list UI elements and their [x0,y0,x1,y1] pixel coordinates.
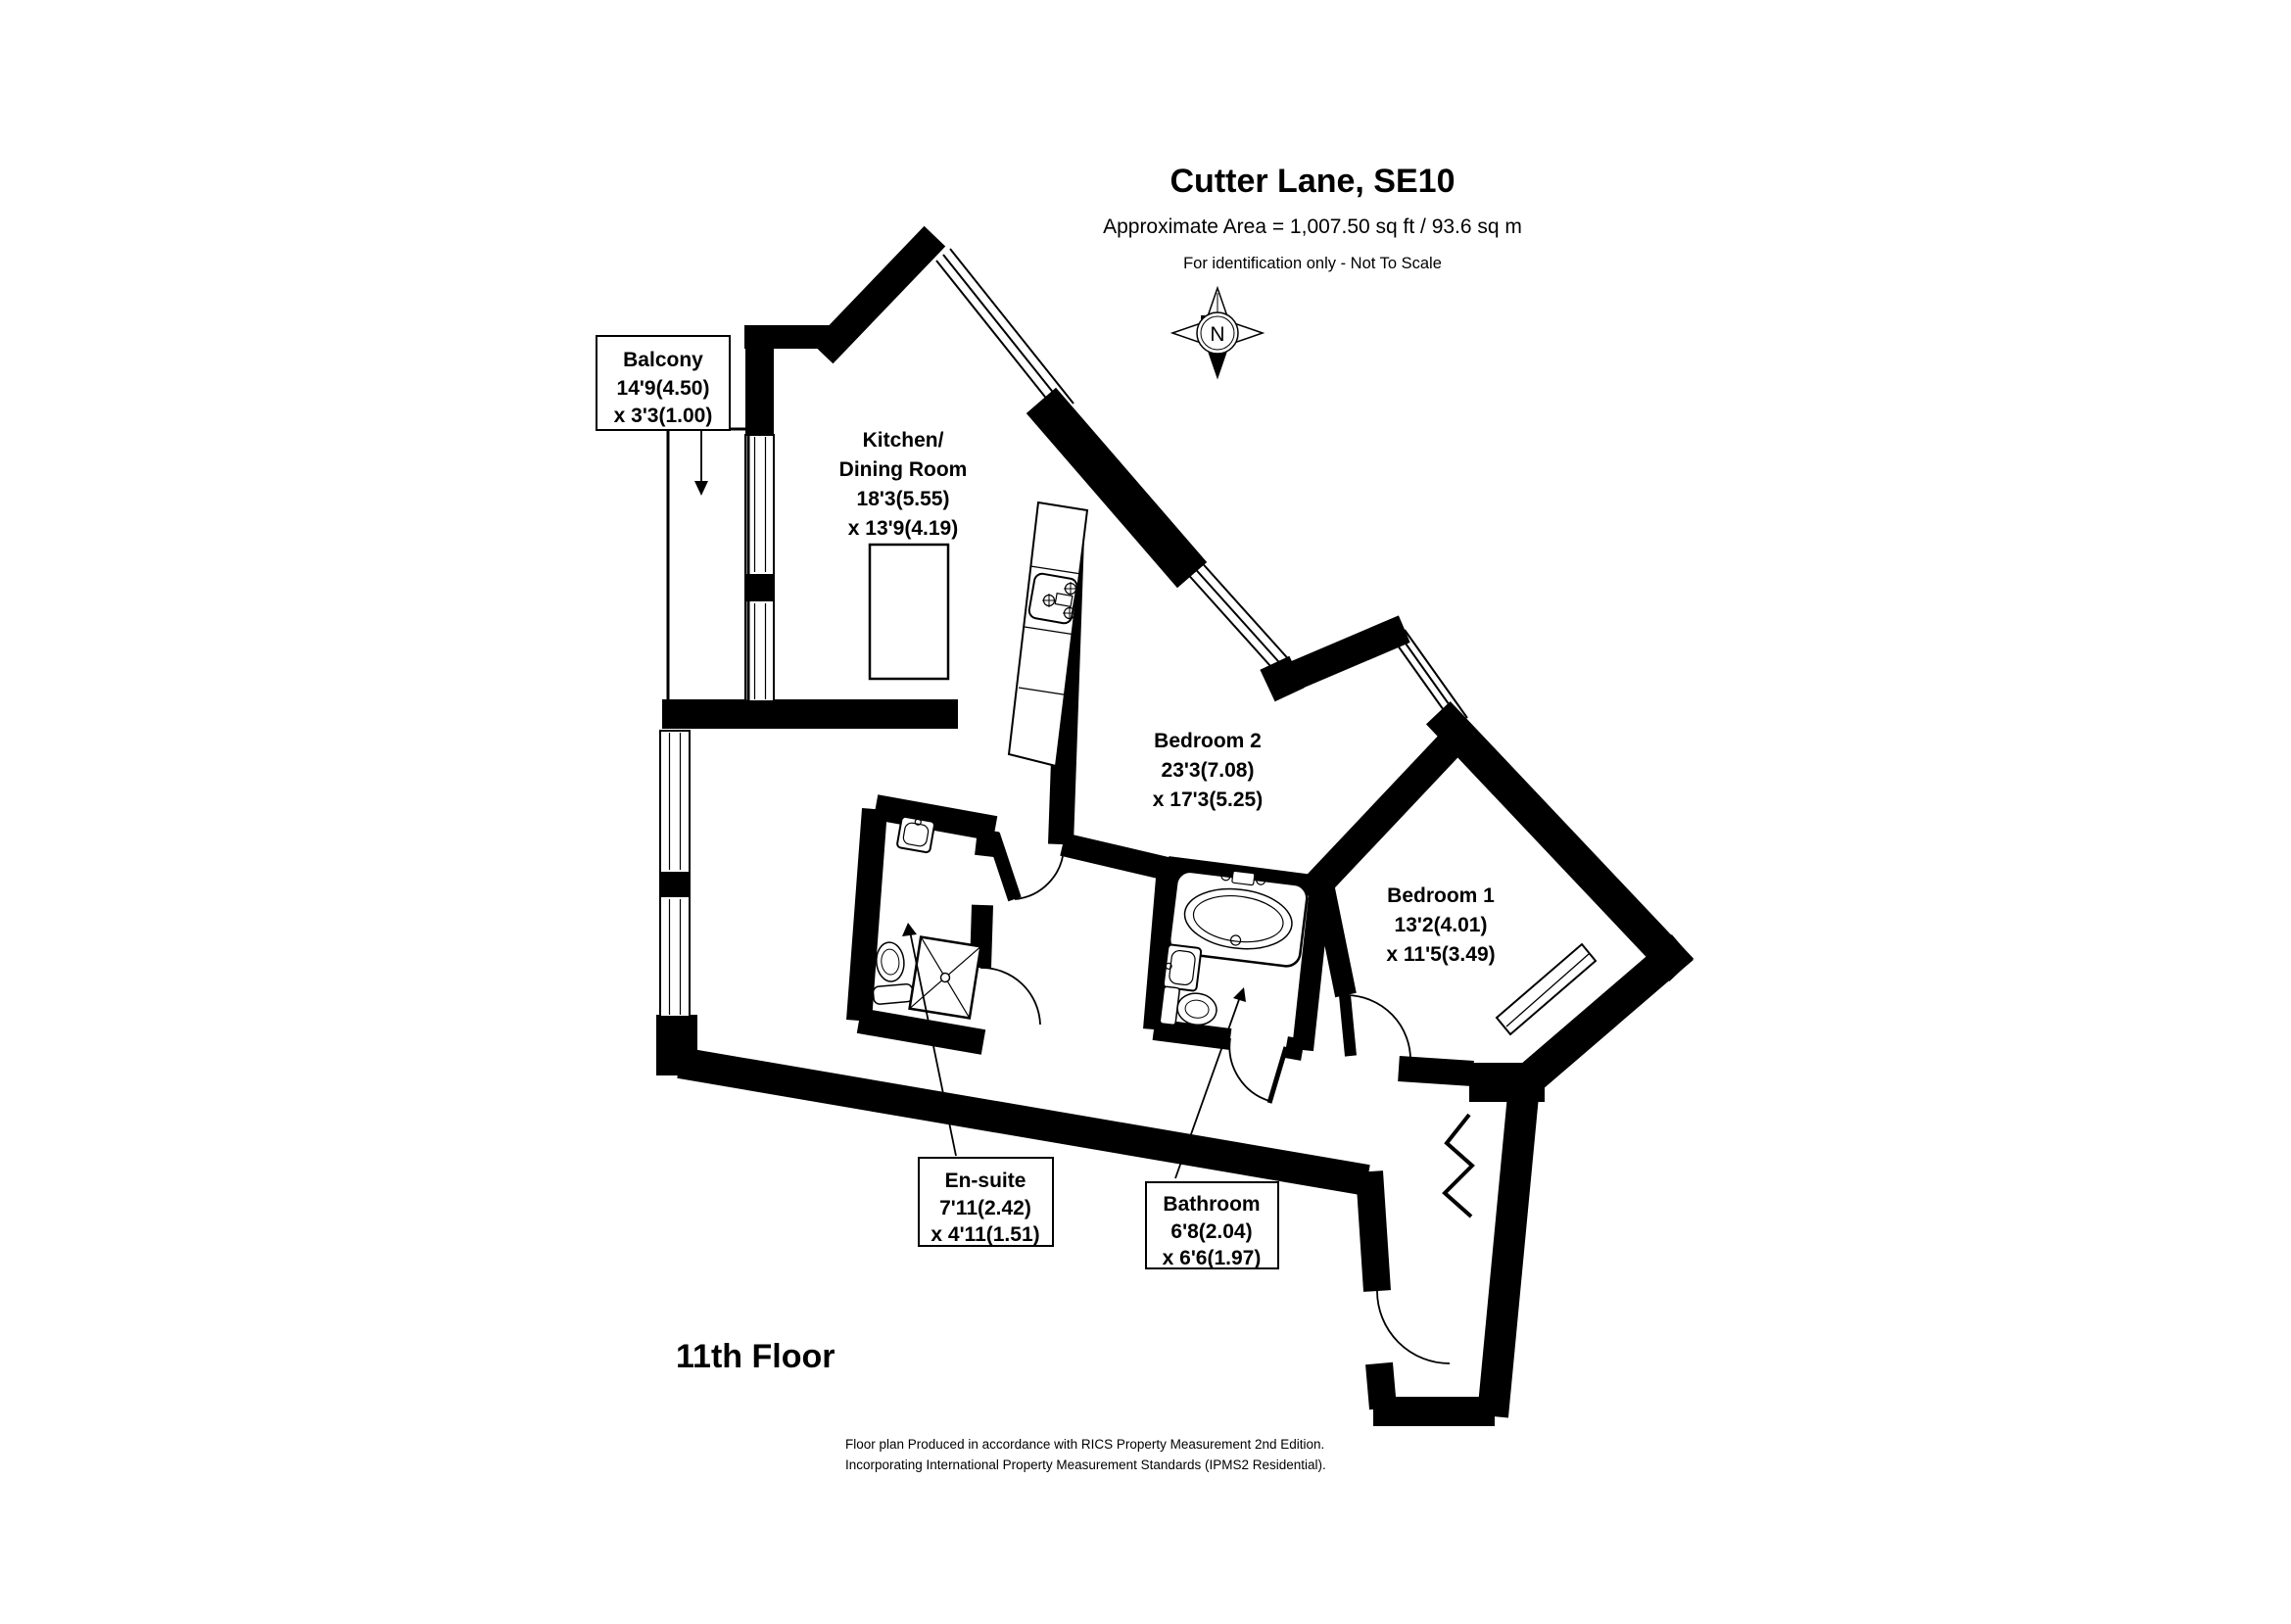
bedroom1-dim2: x 11'5(3.49) [1386,943,1495,966]
bedroom1-label: Bedroom 1 13'2(4.01) x 11'5(3.49) [1386,884,1495,966]
bedroom1-name: Bedroom 1 [1387,884,1495,907]
ensuite-dim2: x 4'11(1.51) [931,1223,1039,1246]
entry-door-icon [1445,1115,1472,1217]
bedroom2-dim1: 23'3(7.08) [1162,759,1255,782]
bathroom-name: Bathroom [1163,1193,1260,1216]
ensuite-dim1: 7'11(2.42) [939,1197,1031,1219]
disclaimer: For identification only - Not To Scale [1183,255,1442,272]
kitchen-name2: Dining Room [839,458,968,481]
floor-plan-svg: N Cutter Lane, SE10 Approximate Area = 1… [0,0,2291,1619]
page-title: Cutter Lane, SE10 [1170,163,1456,200]
floor-label: 11th Floor [676,1338,835,1375]
bathroom-label: Bathroom 6'8(2.04) x 6'6(1.97) [1163,1193,1262,1269]
footer-line2: Incorporating International Property Mea… [845,1457,1326,1472]
bathroom-sink [1163,944,1201,991]
balcony-dim1: 14'9(4.50) [617,377,710,400]
kitchen-dim2: x 13'9(4.19) [848,517,958,540]
bedroom2-dim2: x 17'3(5.25) [1153,788,1263,811]
bedroom2-name: Bedroom 2 [1154,730,1262,752]
footer-line1: Floor plan Produced in accordance with R… [845,1437,1324,1452]
balcony-name: Balcony [623,349,703,371]
balcony-outline [668,429,748,701]
balcony-dim2: x 3'3(1.00) [614,405,713,427]
kitchen-island [870,545,948,679]
ensuite-label: En-suite 7'11(2.42) x 4'11(1.51) [931,1170,1039,1246]
bedroom1-dim1: 13'2(4.01) [1395,914,1488,936]
ensuite-name: En-suite [945,1170,1026,1192]
kitchen-dim1: 18'3(5.55) [857,488,950,510]
bathroom-toilet [1160,986,1218,1030]
hob-icon [1028,573,1078,625]
balcony-label: Balcony 14'9(4.50) x 3'3(1.00) [614,349,713,427]
kitchen-name1: Kitchen/ [863,429,944,452]
compass-icon: N [1172,288,1263,378]
compass-n-label: N [1210,323,1224,346]
ensuite-sink [896,816,934,852]
bathroom-dim1: 6'8(2.04) [1170,1220,1252,1243]
area-subtitle: Approximate Area = 1,007.50 sq ft / 93.6… [1103,215,1522,238]
kitchen-label: Kitchen/ Dining Room 18'3(5.55) x 13'9(4… [839,429,968,540]
bathroom-dim2: x 6'6(1.97) [1163,1247,1262,1269]
bedroom2-label: Bedroom 2 23'3(7.08) x 17'3(5.25) [1153,730,1263,811]
